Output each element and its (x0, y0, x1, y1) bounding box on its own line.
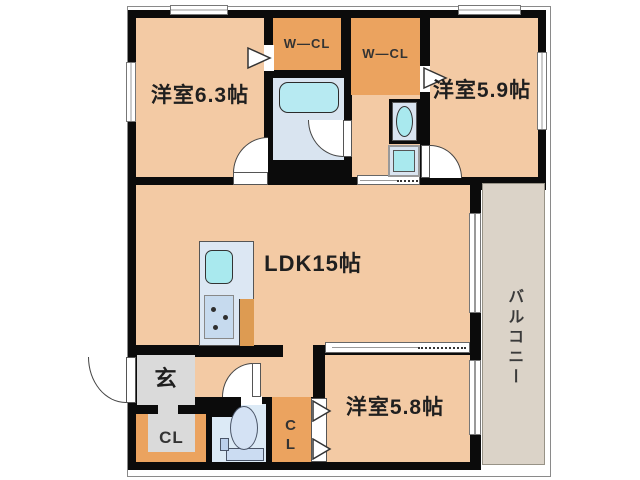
label-entrance-closet: CL (148, 428, 195, 448)
door-gap-toilet (241, 396, 262, 405)
sliding-partition-ldk-bedroom58 (325, 342, 470, 353)
door-swing-arrow-icon (246, 46, 272, 70)
floorplan-canvas: 洋室6.3帖 W—CL W—CL 洋室5.9帖 LDK15帖 バルコニー 玄 C… (0, 0, 640, 480)
toilet-flush-unit (220, 438, 229, 451)
label-ldk: LDK15帖 (253, 250, 373, 278)
door-leaf-bedroom59 (421, 145, 430, 178)
toilet-bowl (230, 406, 258, 450)
kitchen-stove (204, 295, 234, 339)
door-leaf-bedroom63 (233, 172, 268, 185)
window (126, 62, 136, 122)
label-entrance: 玄 (145, 366, 187, 392)
label-wcl-right: W—CL (351, 28, 420, 80)
folding-door-arrow-icon (312, 400, 332, 422)
sliding-door-line (360, 180, 397, 181)
sliding-door-line (332, 347, 418, 348)
label-bedroom-59: 洋室5.9帖 (423, 78, 541, 104)
window-bedroom58-balcony (469, 360, 481, 435)
door-leaf-toilet (252, 363, 261, 397)
washer-pan-inner (393, 150, 415, 172)
label-bedroom-58: 洋室5.8帖 (330, 395, 460, 421)
door-leaf-bathroom (343, 120, 352, 157)
vanity-sink-basin (396, 106, 413, 137)
window (458, 5, 521, 15)
sliding-door-dotted-line (418, 347, 467, 349)
folding-door-arrow-icon (312, 438, 332, 460)
bathtub (279, 82, 339, 113)
label-balcony: バルコニー (498, 283, 528, 393)
stove-burner-icon (211, 307, 216, 312)
door-swing-arc-entrance (88, 357, 126, 403)
label-wcl-left: W—CL (273, 18, 341, 70)
stove-burner-icon (223, 315, 228, 320)
label-bedroom-63: 洋室6.3帖 (140, 82, 260, 110)
kitchen-pillar (239, 299, 254, 346)
window-ldk-balcony (469, 213, 481, 313)
door-leaf-entrance (126, 357, 136, 403)
kitchen-sink (205, 250, 233, 284)
window (170, 5, 228, 15)
label-bedroom58-closet: CL (281, 413, 301, 457)
stove-burner-icon (213, 325, 218, 330)
sliding-door-dotted-line (397, 180, 418, 182)
